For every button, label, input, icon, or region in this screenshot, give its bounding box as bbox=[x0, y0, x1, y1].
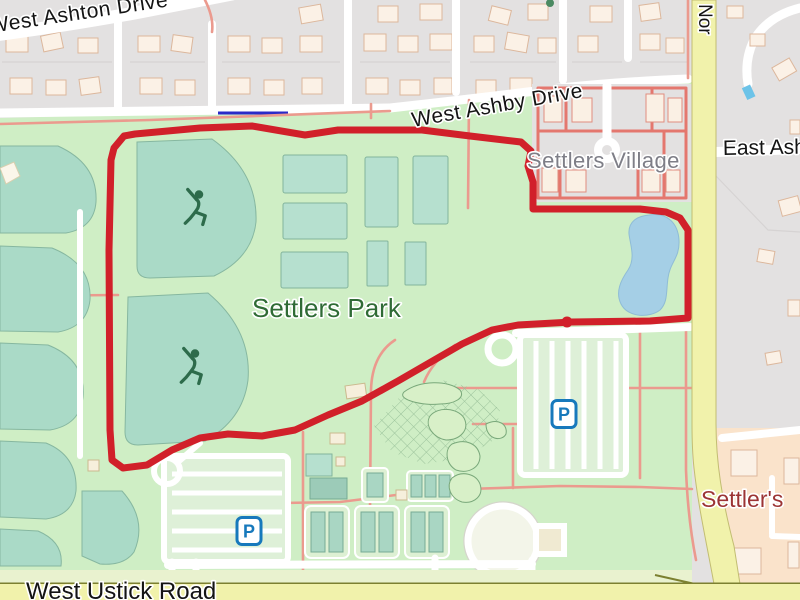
map-canvas[interactable]: P bbox=[0, 0, 800, 600]
place-label-park: Settlers Park bbox=[252, 293, 402, 323]
map-graphics: P bbox=[0, 0, 800, 600]
street-label-ustick: West Ustick Road bbox=[26, 578, 216, 600]
parking-icon-west bbox=[237, 518, 261, 545]
place-label-settlers: Settler's bbox=[701, 486, 783, 512]
place-label-village: Settlers Village bbox=[527, 148, 680, 173]
route-waypoint-dot bbox=[562, 317, 573, 328]
street-label-north: Nor bbox=[694, 4, 715, 35]
street-label-east-ash: East Ash bbox=[723, 136, 800, 160]
parking-icon-east bbox=[552, 401, 576, 428]
